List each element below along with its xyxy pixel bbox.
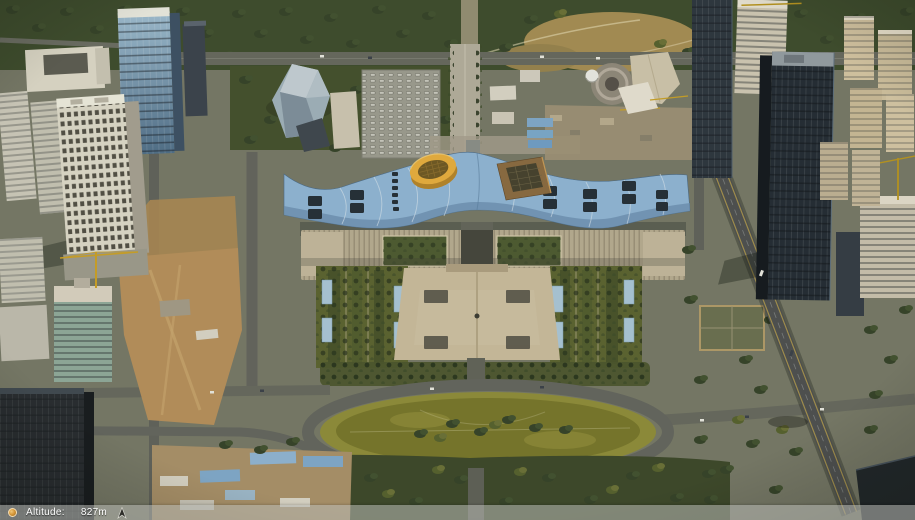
compass-north-icon[interactable] (117, 507, 127, 519)
streaming-status-icon (8, 508, 17, 517)
map-viewport[interactable]: Altitude: 827m (0, 0, 915, 520)
vignette (0, 0, 915, 520)
aerial-3d-view[interactable] (0, 0, 915, 520)
altitude-label: Altitude: (26, 507, 65, 518)
altitude-value: 827m (81, 507, 107, 518)
status-bar: Altitude: 827m (0, 505, 915, 520)
